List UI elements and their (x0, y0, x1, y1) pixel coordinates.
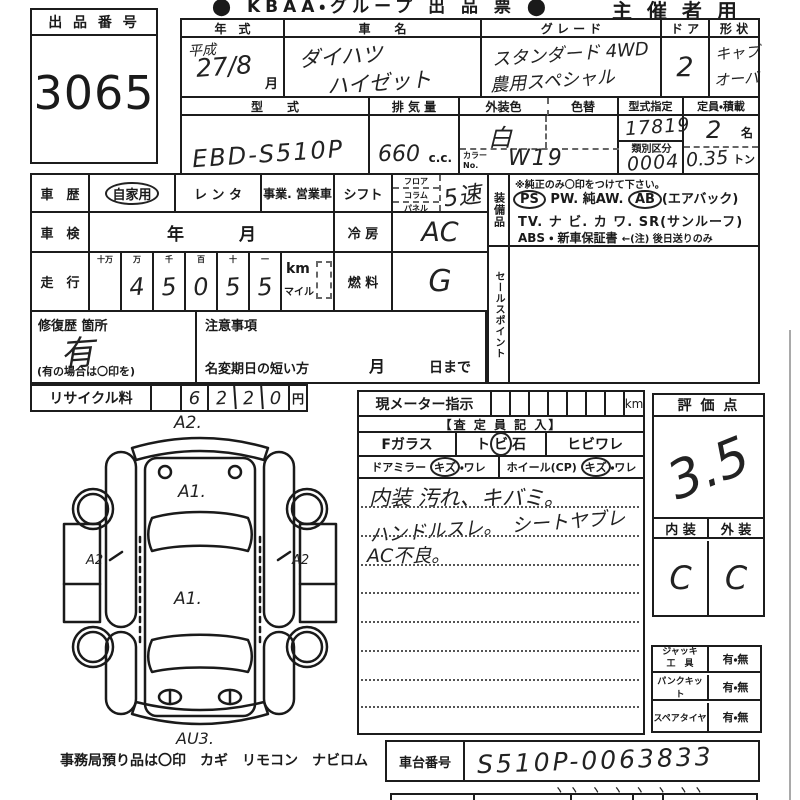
wheel-ware: ・ワレ (611, 459, 637, 475)
meter-digit-cell (587, 392, 606, 417)
vehicle-info-table-upper: 年 式 車 名 グ レ ー ド ド ア 形 状 平成 27/8 月 ダイハツ ハ… (180, 18, 760, 98)
meter-digit-cell (530, 392, 549, 417)
jack-label-line1: ジャッキ (662, 647, 698, 659)
sales-point-label-strip: セールスポイント (487, 245, 510, 384)
shift-label: シフト (335, 175, 393, 211)
grade-value: スタンダード 4WD 農用スペシャル (482, 38, 662, 96)
partial-divider (662, 795, 664, 800)
exhibit-number-label: 出 品 番 号 (32, 10, 156, 36)
caution-box: 注意事項 名変期日の短い方 月 日まで (195, 310, 487, 384)
shift-option-column: コラム (393, 189, 439, 203)
mileage-col-1-header: 一 (250, 253, 280, 266)
mileage-km-label: km (286, 261, 310, 277)
mileage-row: 走 行 十万 万 4 千 5 百 0 十 5 一 5 km マイル (30, 251, 335, 312)
wheel-front-left-inner (78, 494, 108, 524)
history-private: 自家用 (90, 175, 174, 211)
recycle-digit-1: 6 (182, 386, 209, 410)
year-month-unit: 月 (265, 73, 278, 92)
mileage-col-1-digit: 5 (249, 265, 282, 309)
rename-deadline-label: 名変期日の短い方 (205, 358, 309, 377)
equipment-separator: ・ (549, 231, 553, 245)
cooling-value-hand: AC (393, 213, 487, 251)
right-mark-tick (278, 552, 290, 560)
capacity-header: 定員・積載 (684, 98, 758, 116)
name-value: ダイハツ ハイゼット (285, 38, 482, 96)
office-deposit-note: 事務局預り品は〇印 カギ リモコン ナビロム (60, 750, 368, 770)
mileage-col-100k-header: 十万 (90, 253, 120, 266)
equipment-label-strip: 装備品 (487, 173, 510, 247)
left-front-panel (106, 452, 136, 627)
mileage-unit-checkbox (316, 261, 332, 299)
meter-digit-cell (511, 392, 530, 417)
wheel-rear-right-inner (292, 632, 322, 662)
chassis-number-label: 車台番号 (387, 742, 465, 780)
wheel-label: ホイール(CP) (507, 459, 577, 475)
inspection-month-unit: 月 (239, 220, 256, 245)
door-value-hand: 2 (676, 52, 693, 83)
displacement-header: 排 気 量 (370, 98, 460, 116)
fuel-value-hand: G (393, 253, 487, 310)
jack-tools-value: 有・無 (709, 647, 762, 673)
door-mirror-kizu-circled: キズ (430, 457, 460, 477)
stone-chip-a: ト (476, 434, 490, 454)
mileage-col-1k-digit: 5 (153, 265, 186, 309)
equipment-abs: ABS (518, 231, 545, 245)
meter-digit-cell (606, 392, 625, 417)
model-value-hand: EBD-S510P (191, 135, 345, 174)
interior-grade-hand: C (654, 541, 709, 615)
shape-value: キャブ オーバ (710, 38, 758, 96)
right-front-panel (264, 452, 294, 627)
jack-tools-label: ジャッキ 工 具 (653, 647, 709, 673)
mileage-col-10k: 万 4 (122, 253, 154, 310)
mileage-label: 走 行 (32, 253, 90, 310)
equipment-line2: TV. ナ ビ. カ ワ. SR(サンルーフ) (518, 211, 743, 230)
stone-chip-c: 石 (512, 434, 526, 454)
door-mirror-label: ドアミラー (371, 459, 426, 475)
comment-ruled-line (361, 535, 639, 537)
inspection-label: 車 検 (32, 213, 90, 251)
left-door-open (64, 524, 100, 622)
tools-box: ジャッキ 工 具 有・無 パンクキット 有・無 スペアタイヤ 有・無 (651, 645, 762, 733)
recycle-digit-2: 2 (208, 385, 237, 411)
color-block: 白 カラーNo. W19 (460, 116, 619, 173)
capacity-block: 2 名 0.35 トン (684, 116, 758, 173)
wheel-rear-left-inner (78, 632, 108, 662)
mileage-col-100k-digit (90, 266, 120, 308)
model-value: EBD-S510P (182, 116, 370, 173)
spare-tire-value: 有・無 (709, 703, 762, 731)
year-header: 年 式 (182, 20, 285, 38)
stone-chip-circled: ビ (490, 432, 512, 456)
front-glass-cell: Fガラス (359, 433, 457, 457)
equipment-ps-circled: PS (513, 190, 546, 209)
comment-ruled-line (361, 621, 639, 623)
spare-tire-label: スペアタイヤ (653, 703, 709, 731)
door-header: ド ア (662, 20, 710, 38)
mileage-col-1k: 千 5 (154, 253, 186, 310)
damage-mark-right-door: A2 (291, 553, 309, 568)
left-mark-tick (110, 552, 122, 560)
exhibit-number-value: 3065 (32, 38, 156, 148)
meter-digit-cell (568, 392, 587, 417)
vehicle-info-table-lower: 型 式 排 気 量 外装色 色替 型式指定 定員・積載 EBD-S510P 66… (180, 96, 760, 175)
exterior-grade-hand: C (709, 541, 763, 615)
current-meter-label: 現メーター指示 (359, 392, 492, 417)
partial-divider (570, 795, 572, 800)
color-no-row: カラーNo. W19 (460, 148, 619, 173)
type-designation-header: 型式指定 (619, 98, 684, 116)
right-door-open (300, 524, 336, 622)
equipment-ab-note: (エアバック) (662, 192, 738, 207)
mileage-col-10k-digit: 4 (121, 265, 154, 309)
shift-options: フロア コラム パネル (393, 175, 441, 211)
vehicle-damage-diagram: A2. A1. A2 A2 A1. AU3. (48, 412, 353, 747)
repair-history-note: (有の場合は〇印を) (37, 363, 135, 379)
history-label: 車 歴 (32, 175, 90, 211)
meter-digit-cell (492, 392, 511, 417)
door-mirror-ware: ・ワレ (460, 459, 486, 475)
rename-day-unit: 日まで (429, 357, 471, 377)
type-designation-value-hand: 17819 (624, 114, 691, 141)
comment-ruled-line (361, 650, 639, 652)
damage-mark-bottom: AU3. (175, 729, 214, 747)
exterior-color-header: 外装色 (460, 98, 547, 116)
windshield (148, 512, 252, 551)
jack-label-line2: 工 具 (666, 659, 693, 671)
equipment-leather: カ ワ. (594, 215, 633, 230)
meter-km-unit: km (625, 392, 643, 417)
equipment-navi: ナ ビ. (549, 215, 588, 230)
door-value: 2 (662, 38, 710, 96)
partial-divider (473, 795, 475, 800)
wheel-cell: ホイール(CP) キズ・ワレ (500, 457, 643, 479)
mileage-col-10: 十 5 (218, 253, 250, 310)
equipment-line1: PS PW. 純AW. AB(エアバック) (513, 188, 738, 209)
next-section-partial (390, 793, 758, 800)
puncture-kit-value: 有・無 (709, 675, 762, 701)
mileage-col-10-digit: 5 (217, 265, 250, 309)
mileage-col-100-digit: 0 (185, 265, 218, 309)
rear-window (148, 635, 252, 672)
partial-divider (632, 795, 634, 800)
capacity-value-hand: 2 (706, 116, 721, 144)
rear-bumper (132, 702, 268, 724)
cooling-row: 冷 房 AC (333, 211, 489, 253)
color-divider-v (545, 116, 547, 148)
equipment-sr-note: (サンルーフ) (660, 215, 743, 230)
exterior-header: 外 装 (709, 517, 763, 539)
equipment-tv: TV. (518, 215, 543, 230)
shape-line1-hand: キャブ (714, 40, 760, 64)
score-label: 評 価 点 (654, 395, 763, 417)
recycle-digit-3: 2 (235, 385, 264, 411)
history-rental: レ ン タ (174, 175, 260, 211)
mileage-col-10k-header: 万 (122, 253, 152, 266)
front-bumper (132, 438, 268, 460)
recycle-unit: 円 (290, 386, 306, 410)
left-rear-panel (106, 632, 136, 714)
mileage-col-100-header: 百 (186, 253, 216, 266)
displacement-value: 660 c.c. (370, 116, 460, 173)
equipment-warranty-note: ←(注) 後日送りのみ (622, 234, 713, 245)
cooling-label: 冷 房 (335, 213, 393, 251)
right-rear-panel (264, 632, 294, 714)
score-box: 評 価 点 3.5 内 装 外 装 C C (652, 393, 765, 617)
auction-sheet: ⬤ KBAA・グループ 出 品 票 ⬤ 主 催 者 用 出 品 番 号 3065… (0, 0, 800, 800)
comment-ruled-line (361, 706, 639, 708)
interior-header: 内 装 (654, 517, 709, 539)
mileage-col-1: 一 5 (250, 253, 282, 310)
fuel-label: 燃 料 (335, 253, 393, 310)
year-number-hand: 27/8 (195, 50, 253, 83)
equipment-aw: 純AW. (583, 192, 624, 207)
equipment-label: 装備品 (489, 175, 508, 245)
equipment-line3: ABS ・ 新車保証書 ←(注) 後日送りのみ (518, 229, 713, 246)
sales-point-label: セールスポイント (489, 247, 508, 382)
recycle-fee-blank-cell (152, 386, 182, 410)
name-header: 車 名 (285, 20, 482, 38)
headlight-left (159, 466, 171, 478)
auction-house-logo: ⬤ KBAA・グループ 出 品 票 ⬤ (212, 0, 642, 17)
sales-point-box (508, 245, 760, 384)
displacement-unit: c.c. (429, 151, 452, 165)
damage-mark-left-door: A2 (85, 553, 103, 568)
recycle-fee-row: リサイクル料 6 2 2 0 円 (30, 384, 308, 412)
mileage-col-1k-header: 千 (154, 253, 184, 266)
history-commercial: 事業. 営業車 (260, 175, 333, 211)
puncture-kit-label: パンクキット (653, 675, 709, 701)
damage-mark-hood: A1. (177, 482, 206, 502)
history-row: 車 歴 自家用 レ ン タ 事業. 営業車 (30, 173, 335, 213)
fuel-row: 燃 料 G (333, 251, 489, 312)
displacement-value-hand: 660 (378, 142, 420, 167)
rename-month-unit: 月 (369, 353, 385, 377)
meter-assessor-box: 現メーター指示 km 【査 定 員 記 入】 Fガラス トビ石 ヒビワレ ドアミ… (357, 390, 645, 735)
capacity-unit: 名 (741, 124, 753, 141)
meter-digit-cell (549, 392, 568, 417)
color-no-label: カラーNo. (463, 151, 487, 170)
shift-option-floor: フロア (393, 175, 439, 189)
class-section-value-hand: 0004 (626, 150, 680, 176)
damage-mark-top: A2. (173, 413, 202, 433)
mileage-col-100: 百 0 (186, 253, 218, 310)
door-mirror-cell: ドアミラー キズ・ワレ (359, 457, 500, 479)
comment-ruled-line (361, 679, 639, 681)
shape-header: 形 状 (710, 20, 758, 38)
inspection-year-unit: 年 (167, 220, 184, 245)
history-private-circle: 自家用 (105, 182, 158, 205)
type-designation-block: 17819 類別区分 0004 (619, 116, 684, 173)
crack-cell: ヒビワレ (547, 433, 643, 457)
caution-label: 注意事項 (205, 315, 257, 334)
year-value: 平成 27/8 月 (182, 38, 285, 96)
equipment-box: ※純正のみ〇印をつけて下さい。 PS PW. 純AW. AB(エアバック) TV… (508, 173, 760, 247)
color-no-value-hand: W19 (508, 146, 564, 171)
mileage-col-10-header: 十 (218, 253, 248, 266)
color-change-header: 色替 (547, 98, 619, 116)
recycle-digit-4: 0 (263, 386, 290, 410)
assessor-entry-header: 【査 定 員 記 入】 (359, 417, 643, 433)
shift-value-hand: 5速 (441, 175, 483, 214)
damage-mark-center: A1. (173, 589, 202, 609)
page-edge-line (789, 330, 791, 800)
wheel-front-right-inner (292, 494, 322, 524)
shape-line2-hand: オーバ (713, 66, 759, 90)
chassis-number-box: 車台番号 S510P-0063833 (385, 740, 760, 782)
headlight-right (229, 466, 241, 478)
load-unit: トン (733, 151, 755, 167)
load-value-hand: 0.35 (685, 147, 729, 172)
score-value-hand: 3.5 (640, 403, 777, 534)
mileage-unit-cell: km マイル (282, 253, 314, 310)
exhibit-number-box: 出 品 番 号 3065 (30, 8, 158, 164)
inspection-row: 車 検 年 月 (30, 211, 335, 253)
stone-chip-cell: トビ石 (457, 433, 547, 457)
chassis-number-value-hand: S510P-0063833 (477, 742, 715, 779)
mileage-col-100k: 十万 (90, 253, 122, 310)
equipment-warranty: 新車保証書 (558, 231, 618, 245)
repair-history-box: 修復歴 箇所 有 (有の場合は〇印を) (30, 310, 197, 384)
recycle-fee-label: リサイクル料 (32, 386, 152, 410)
comment-ruled-line (361, 564, 639, 566)
mileage-mile-label: マイル (284, 283, 314, 298)
equipment-sr: SR (639, 215, 660, 230)
comment-ruled-line (361, 592, 639, 594)
equipment-ab-circled: AB (628, 190, 662, 209)
comment-ruled-line (361, 506, 639, 508)
model-header: 型 式 (182, 98, 370, 116)
inspection-value: 年 月 (90, 213, 333, 251)
equipment-pw: PW. (550, 192, 578, 207)
shift-row: シフト フロア コラム パネル 5速 (333, 173, 489, 213)
wheel-kizu-circled: キズ (581, 457, 611, 477)
